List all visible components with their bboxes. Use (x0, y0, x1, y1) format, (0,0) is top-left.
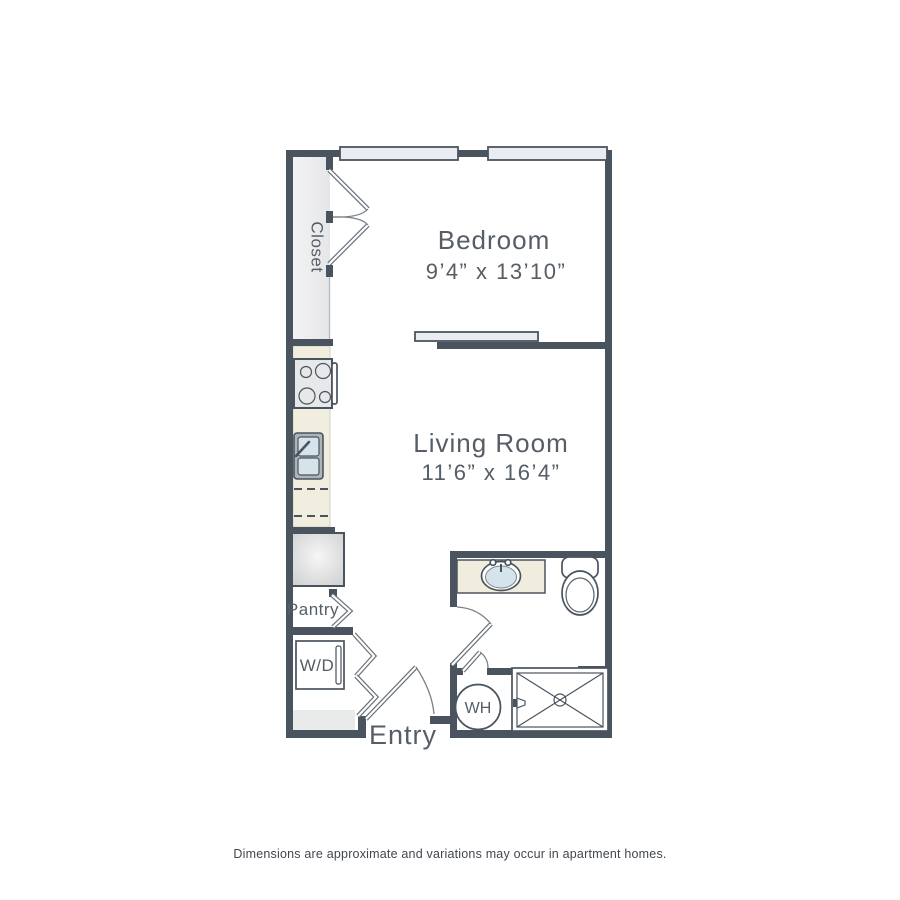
sliding-door-panel (415, 332, 538, 341)
window-icon (340, 147, 458, 160)
door-arc (333, 209, 368, 217)
closet-doors (329, 170, 368, 264)
disclaimer-text: Dimensions are approximate and variation… (0, 847, 900, 861)
wall-bottom-left (286, 730, 366, 738)
floorplan-page: Closet Bedroom 9’4” x 13’10” Living Room… (0, 0, 900, 900)
door-arc (416, 667, 434, 714)
entry-door (366, 667, 434, 719)
wall-pantry-bottom (287, 627, 353, 635)
faucet-knob (490, 560, 496, 566)
washer-dryer-closet (296, 634, 376, 716)
bedroom-label: Bedroom (438, 225, 551, 255)
bifold-door-icon (354, 634, 374, 676)
door-arc (457, 607, 491, 624)
floorplan-drawing: Closet Bedroom 9’4” x 13’10” Living Room… (0, 0, 900, 900)
wall-closet-stub-top (326, 157, 333, 170)
stove-handle (332, 363, 337, 404)
wall-wh-top-left (450, 668, 463, 675)
bedroom-dimensions: 9’4” x 13’10” (426, 259, 567, 284)
sink-basin (298, 437, 319, 456)
water-heater-label: WH (465, 700, 492, 717)
wall-wh-top-right (487, 668, 513, 675)
door-leaf (463, 652, 480, 671)
wall-closet-bottom (287, 339, 333, 346)
pantry-label: Pantry (287, 600, 339, 619)
wall-entry-jog (358, 716, 366, 736)
water-heater-door (463, 652, 488, 671)
wall-bathroom-left-stub (450, 551, 457, 607)
kitchen-fixtures (292, 359, 344, 586)
door-arc (333, 217, 368, 225)
sink-basin (298, 458, 319, 475)
faucet-knob (505, 560, 511, 566)
door-leaf (329, 170, 368, 209)
door-arc (480, 652, 488, 668)
closet-label: Closet (308, 221, 327, 272)
living-room-label: Living Room (413, 428, 569, 458)
refrigerator-icon (292, 533, 344, 586)
living-room-dimensions: 11’6” x 16’4” (422, 460, 561, 485)
window-icon (488, 147, 607, 160)
door-leaf (329, 225, 368, 264)
entry-floor-strip (293, 710, 355, 730)
toilet-bowl (566, 578, 594, 612)
washer-dryer-label: W/D (300, 656, 335, 675)
entry-label: Entry (369, 720, 437, 750)
bathroom-door (452, 607, 491, 665)
wall-bedroom-divider (437, 342, 612, 349)
wall-right (605, 150, 612, 738)
wall-left (286, 150, 293, 738)
